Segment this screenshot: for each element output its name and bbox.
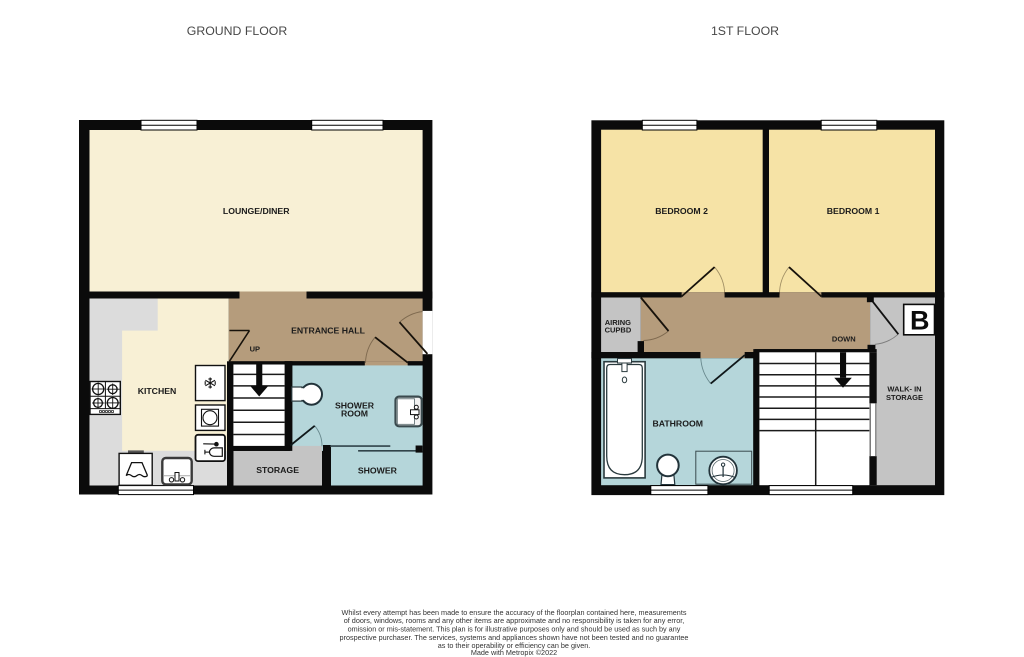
svg-text:CUPBD: CUPBD [605, 326, 632, 335]
svg-text:UP: UP [250, 345, 260, 354]
svg-text:STORAGE: STORAGE [886, 393, 923, 402]
svg-text:DOWN: DOWN [832, 334, 856, 343]
svg-text:GROUND FLOOR: GROUND FLOOR [187, 24, 288, 38]
svg-text:ENTRANCE HALL: ENTRANCE HALL [291, 326, 366, 336]
svg-text:STORAGE: STORAGE [256, 465, 299, 475]
svg-text:BATHROOM: BATHROOM [652, 419, 703, 429]
svg-text:B: B [910, 306, 930, 336]
svg-text:ROOM: ROOM [341, 409, 368, 419]
svg-text:SHOWER: SHOWER [358, 465, 398, 475]
svg-text:KITCHEN: KITCHEN [138, 386, 177, 396]
svg-text:LOUNGE/DINER: LOUNGE/DINER [223, 206, 290, 216]
svg-text:BEDROOM 1: BEDROOM 1 [827, 206, 880, 216]
svg-text:BEDROOM 2: BEDROOM 2 [655, 206, 708, 216]
svg-text:Made with Metropix ©2022: Made with Metropix ©2022 [471, 648, 557, 657]
svg-text:1ST FLOOR: 1ST FLOOR [711, 24, 779, 38]
